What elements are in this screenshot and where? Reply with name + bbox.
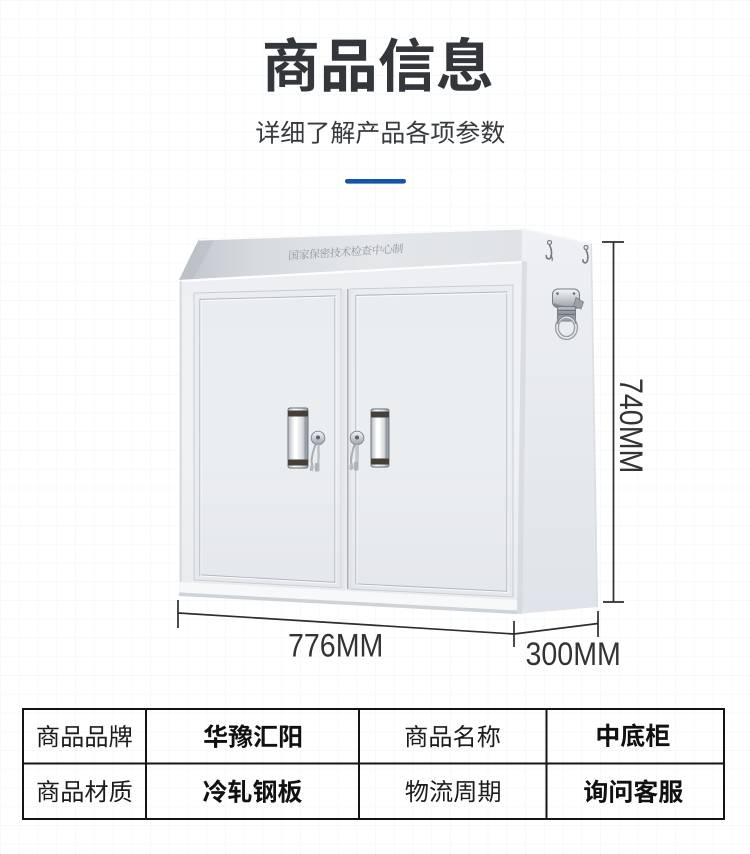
svg-text:300MM: 300MM	[526, 636, 621, 672]
svg-text:776MM: 776MM	[288, 628, 383, 664]
svg-text:740MM: 740MM	[613, 378, 649, 473]
